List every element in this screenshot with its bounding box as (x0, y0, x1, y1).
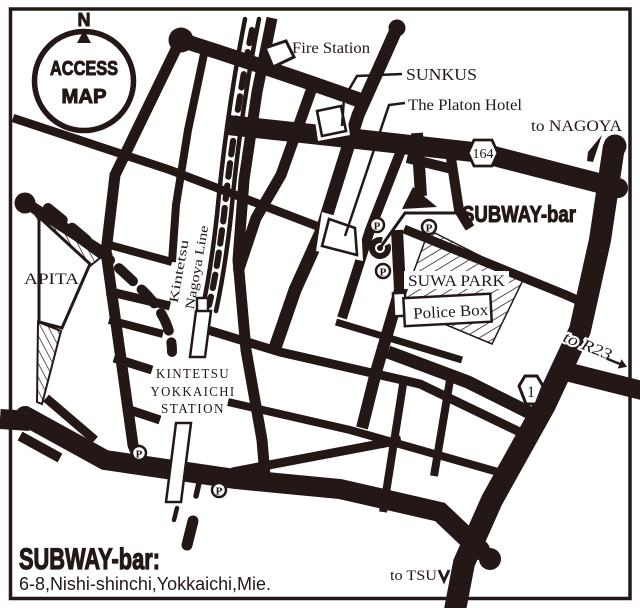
svg-text:to NAGOYA: to NAGOYA (531, 118, 622, 135)
svg-text:STATION: STATION (161, 401, 225, 416)
svg-text:P: P (426, 223, 433, 235)
svg-text:KINTETSU: KINTETSU (156, 366, 230, 381)
svg-text:SUBWAY-bar:: SUBWAY-bar: (19, 543, 160, 576)
svg-text:SUBWAY-bar: SUBWAY-bar (462, 201, 576, 227)
svg-text:N: N (78, 10, 91, 30)
svg-text:ACCESS: ACCESS (50, 58, 118, 80)
svg-text:1: 1 (527, 384, 535, 401)
svg-text:Fire Station: Fire Station (292, 40, 370, 57)
svg-text:The Platon Hotel: The Platon Hotel (408, 97, 523, 114)
svg-text:SUNKUS: SUNKUS (406, 65, 477, 84)
svg-text:YOKKAICHI: YOKKAICHI (151, 384, 236, 399)
svg-text:164: 164 (473, 147, 494, 162)
svg-text:to TSU: to TSU (390, 568, 437, 584)
svg-text:SUWA PARK: SUWA PARK (408, 273, 505, 290)
svg-text:P: P (216, 486, 223, 498)
svg-text:MAP: MAP (62, 86, 107, 108)
svg-text:P: P (374, 221, 381, 233)
svg-text:APITA: APITA (24, 271, 80, 288)
svg-text:P: P (380, 267, 387, 279)
svg-text:P: P (136, 449, 143, 461)
svg-text:6-8,Nishi-shinchi,Yokkaichi,Mi: 6-8,Nishi-shinchi,Yokkaichi,Mie. (19, 574, 271, 594)
